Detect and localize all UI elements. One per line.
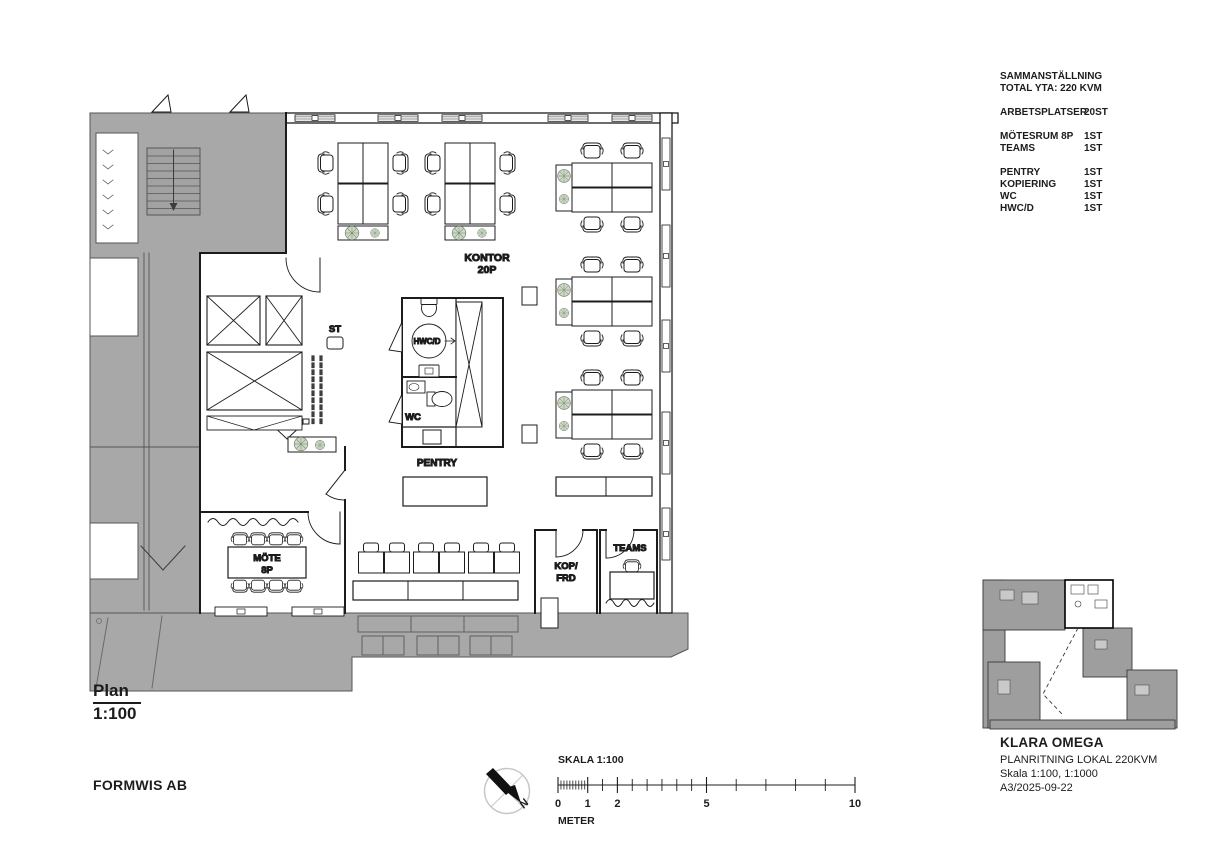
summary-total: TOTAL YTA: 220 KVM [1000, 83, 1200, 95]
chair-icon [285, 533, 303, 545]
desk-cluster [318, 143, 408, 240]
summary-table: SAMMANSTÄLLNING TOTAL YTA: 220 KVM ARBET… [1000, 71, 1200, 215]
summary-row: WC 1ST [1000, 191, 1200, 203]
leader-line [1043, 628, 1078, 714]
north-label: N [517, 796, 532, 811]
chair-icon [267, 533, 285, 545]
wc-core: HWC/D WC [389, 298, 503, 447]
chair-icon [393, 193, 408, 215]
chair-icon [249, 533, 267, 545]
summary-row: TEAMS 1ST [1000, 143, 1200, 155]
scale-tick-10: 10 [849, 798, 861, 810]
chair-icon [581, 331, 603, 346]
door-leaf [389, 394, 402, 424]
scale-tick-2: 2 [614, 798, 620, 810]
scale-line: Skala 1:100, 1:1000 [1000, 767, 1215, 781]
chair-icon [621, 217, 643, 232]
drawing-title-scale: 1:100 [93, 704, 141, 724]
drawing-title-name: Plan [93, 681, 141, 704]
plant-icon [558, 170, 571, 183]
room-label-mote-p: 8P [261, 565, 273, 576]
floor-plan: ST HWC/D [90, 95, 688, 691]
side-room [90, 258, 138, 336]
door-arc [326, 494, 345, 500]
chair-icon [621, 370, 643, 385]
neighbour-furniture [358, 616, 518, 655]
summary-row: KOPIERING 1ST [1000, 179, 1200, 191]
desk-cluster [556, 370, 652, 459]
curtain-icon [606, 600, 654, 607]
chair-icon [267, 580, 285, 592]
bar-stool-icon [495, 543, 520, 573]
plant-table [288, 437, 336, 452]
chair-icon [581, 370, 603, 385]
chair-icon [393, 152, 408, 174]
desk-cluster [556, 257, 652, 346]
passage [541, 598, 558, 628]
chair-icon [425, 152, 440, 174]
title-block: KLARA OMEGA PLANRITNING LOKAL 220KVM Ska… [1000, 735, 1215, 795]
plant-icon [559, 421, 569, 431]
scale-bar: SKALA 1:100 0 1 2 5 10 METER [555, 754, 861, 827]
meeting-room: MÖTE 8P [200, 447, 345, 616]
desk-cluster [556, 143, 652, 232]
plant-icon [315, 440, 325, 450]
summary-row: HWC/D 1ST [1000, 203, 1200, 215]
sink-icon [407, 381, 425, 393]
project-name: KLARA OMEGA [1000, 735, 1215, 750]
room-label-kontor: KONTOR [464, 252, 510, 264]
plant-icon [345, 226, 359, 240]
bar-stool-icon [440, 543, 465, 573]
highlighted-unit [1065, 580, 1113, 628]
plant-icon [294, 437, 308, 451]
pillar [522, 287, 537, 305]
pentry-island [403, 477, 487, 506]
scale-tick-0: 0 [555, 798, 561, 810]
chair-icon [318, 193, 333, 215]
company-name: FORMWIS AB [93, 777, 187, 793]
chair-icon [231, 580, 249, 592]
sink-icon [419, 365, 439, 377]
drawing-subtitle: PLANRITNING LOKAL 220KVM [1000, 753, 1215, 767]
door-leaf [389, 322, 402, 352]
chair-icon [623, 560, 641, 572]
room-label-pentry: PENTRY [417, 458, 458, 469]
plant-icon [558, 397, 571, 410]
door-arc [556, 530, 583, 557]
scale-tick-5: 5 [703, 798, 709, 810]
room-label-hwcd: HWC/D [413, 337, 440, 346]
summary-title: SAMMANSTÄLLNING [1000, 71, 1200, 83]
location-map [983, 580, 1177, 729]
chair-icon [621, 143, 643, 158]
summary-row: PENTRY 1ST [1000, 167, 1200, 179]
chair-icon [581, 257, 603, 272]
window-sill [292, 607, 344, 616]
chair-icon [621, 257, 643, 272]
teams-table [610, 572, 654, 599]
summary-row: ARBETSPLATSER 20ST [1000, 107, 1200, 119]
bar-bench [353, 581, 518, 600]
room-label-frd: FRD [556, 573, 576, 584]
chair-icon [621, 444, 643, 459]
sheet-line: A3/2025-09-22 [1000, 781, 1215, 795]
room-label-st: ST [329, 324, 341, 335]
chair-icon [581, 143, 603, 158]
plant-icon [559, 194, 569, 204]
chair-icon [318, 152, 333, 174]
scale-bar-title: SKALA 1:100 [558, 754, 624, 766]
door-arc [308, 512, 340, 544]
curtain-icon [208, 519, 298, 526]
side-room [96, 133, 138, 243]
chair-icon [581, 217, 603, 232]
entry-door-arc [286, 258, 320, 292]
sideboard [556, 477, 652, 496]
plant-icon [478, 229, 487, 238]
chair-icon [231, 533, 249, 545]
chair-icon [500, 193, 515, 215]
north-arrow: N [485, 768, 533, 814]
drawing-title: Plan 1:100 [93, 681, 141, 724]
plant-icon [558, 284, 571, 297]
scale-tick-1: 1 [585, 798, 591, 810]
pentry-area: PENTRY [353, 458, 652, 600]
scale-unit: METER [558, 815, 595, 827]
chair-icon [581, 444, 603, 459]
elevator-shaft [207, 296, 302, 430]
stairwell [147, 148, 200, 215]
chair-icon [285, 580, 303, 592]
coat-rack-icon [313, 357, 321, 427]
st-closet: ST [327, 324, 343, 349]
chair-icon [500, 152, 515, 174]
room-label-kop: KOP/ [554, 561, 578, 572]
bar-stool-icon [469, 543, 494, 573]
plant-icon [371, 229, 380, 238]
summary-row: MÖTESRUM 8P 1ST [1000, 131, 1200, 143]
room-label-wc: WC [405, 412, 421, 423]
plant-icon [452, 226, 466, 240]
teams-room: TEAMS [600, 530, 657, 613]
pillar [522, 425, 537, 443]
chair-icon [621, 331, 643, 346]
room-label-kontor-p: 20P [478, 264, 497, 276]
bar-stool-icon [414, 543, 439, 573]
room-label-teams: TEAMS [613, 543, 646, 554]
plant-icon [559, 308, 569, 318]
bar-stool-icon [385, 543, 410, 573]
desk-cluster [425, 143, 515, 240]
bar-stool-icon [359, 543, 384, 573]
window-sill [215, 607, 267, 616]
chair-icon [249, 580, 267, 592]
side-room [90, 523, 138, 579]
chair-icon [425, 193, 440, 215]
room-label-mote: MÖTE [253, 553, 280, 564]
